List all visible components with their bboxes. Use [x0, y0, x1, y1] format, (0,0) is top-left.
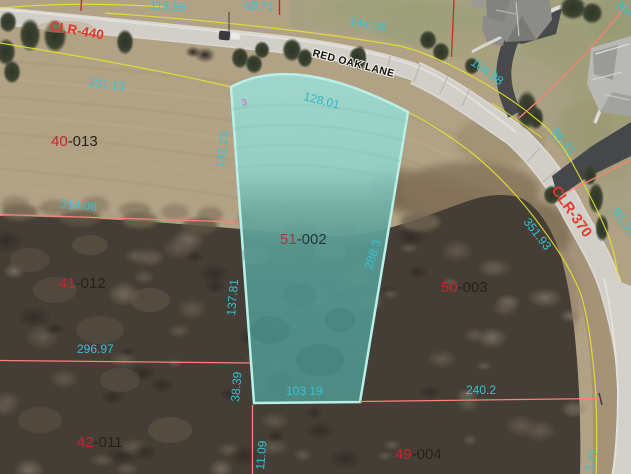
svg-text:51-002: 51-002 — [280, 231, 327, 248]
svg-text:40-013: 40-013 — [51, 133, 98, 150]
svg-text:41-012: 41-012 — [59, 275, 106, 292]
svg-text:314.08: 314.08 — [60, 197, 98, 214]
svg-text:296.97: 296.97 — [77, 342, 114, 356]
svg-text:50-003: 50-003 — [441, 279, 488, 296]
svg-text:240.2: 240.2 — [466, 383, 496, 397]
svg-text:11.09: 11.09 — [253, 440, 270, 471]
svg-text:38.39: 38.39 — [228, 371, 245, 402]
svg-text:103 19: 103 19 — [286, 384, 323, 398]
svg-text:60.71: 60.71 — [244, 0, 275, 14]
svg-text:49-004: 49-004 — [395, 446, 442, 463]
svg-text:118.55: 118.55 — [150, 0, 187, 15]
svg-text:42-011: 42-011 — [77, 434, 123, 451]
